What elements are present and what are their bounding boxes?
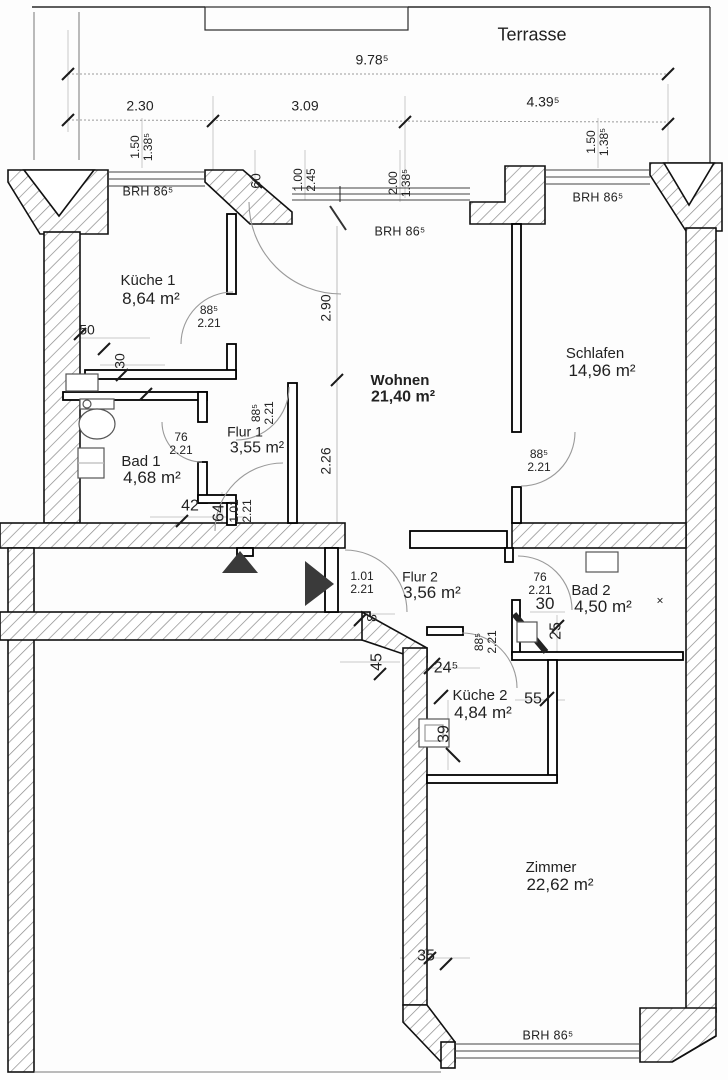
door-kueche2-dim: 88⁵ 2.21 — [473, 630, 499, 653]
door-kueche1-dim: 88⁵ 2.21 — [197, 304, 220, 330]
dim-seg-mid: 3.09 — [291, 98, 318, 113]
dim-wall-45: 45 — [368, 653, 385, 671]
floor-plan-drawing — [0, 0, 728, 1080]
dim-depth-226: 2.26 — [318, 447, 333, 474]
entrance-arrows — [222, 551, 334, 606]
dim-bad2-30: 30 — [536, 595, 555, 613]
brh-label-bottom: BRH 86⁵ — [522, 1029, 573, 1043]
dim-wall-8: 8 — [364, 614, 379, 622]
room-wohnen-area: 21,40 m² — [371, 388, 435, 405]
door-flur1-dim: 88⁵ 2.21 — [250, 401, 276, 424]
room-flur1-area: 3,55 m² — [230, 439, 284, 456]
dim-step-64: 64 — [210, 504, 227, 522]
room-kueche1-area: 8,64 m² — [122, 290, 180, 308]
terrace-label: Terrasse — [497, 25, 566, 44]
extension-lines — [55, 30, 668, 958]
dim-window-left: 1.50 1.38⁵ — [129, 133, 155, 161]
dim-seg-right: 4.39⁵ — [526, 94, 559, 109]
dim-bad2-25: 25 — [547, 622, 564, 640]
brh-label-middle: BRH 86⁵ — [374, 225, 425, 239]
dim-balcony-door: 1.00 2.45 — [292, 168, 318, 191]
room-wohnen-label: Wohnen — [371, 373, 430, 389]
room-kueche2-label: Küche 2 — [452, 688, 507, 704]
wall-niche — [66, 374, 98, 391]
brh-label-right: BRH 86⁵ — [572, 191, 623, 205]
x-marker: × — [656, 595, 663, 608]
room-kueche1-label: Küche 1 — [120, 273, 175, 289]
bad2-sink — [586, 552, 618, 572]
dim-wall-35: 35 — [417, 947, 435, 964]
dim-wall-50: 50 — [79, 322, 95, 337]
dim-total-width: 9.78⁵ — [355, 52, 388, 67]
door-schlafen-dim: 88⁵ 2.21 — [527, 448, 550, 474]
door-bad1-dim: 76 2.21 — [169, 431, 192, 457]
dim-shaft-30: 30 — [112, 353, 127, 369]
toilet-flush — [83, 400, 91, 408]
bad2-shower-tray — [517, 622, 537, 642]
brh-label-left: BRH 86⁵ — [122, 185, 173, 199]
dim-depth-290: 2.90 — [318, 294, 333, 321]
dim-pillar-60: 60 — [248, 173, 263, 189]
dim-window-right: 1.50 1.38⁵ — [585, 128, 611, 156]
room-kueche2-area: 4,84 m² — [454, 704, 512, 722]
room-flur2-area: 3,56 m² — [403, 584, 461, 602]
room-bad2-area: 4,50 m² — [574, 598, 632, 616]
room-schlafen-area: 14,96 m² — [568, 362, 635, 380]
room-zimmer-label: Zimmer — [526, 860, 577, 876]
room-flur1-label: Flur 1 — [227, 424, 263, 439]
outer-walls — [0, 163, 722, 1072]
dim-seg-left: 2.30 — [126, 98, 153, 113]
room-zimmer-area: 22,62 m² — [526, 876, 593, 894]
room-schlafen-label: Schlafen — [566, 346, 624, 362]
floor-plan-page: Terrasse 9.78⁵ 2.30 3.09 4.39⁵ 1.50 1.38… — [0, 0, 728, 1080]
entry-flur2-dim: 1.01 2.21 — [350, 570, 373, 596]
dim-wall-39: 39 — [435, 725, 452, 743]
dim-wohnen-window: 2.00 1.38⁵ — [387, 169, 413, 197]
room-bad1-area: 4,68 m² — [123, 469, 181, 487]
dim-step-42: 42 — [181, 497, 199, 514]
dim-wall-55: 55 — [524, 690, 542, 707]
toilet-bowl — [79, 409, 115, 439]
dim-wall-245: 24⁵ — [434, 659, 458, 676]
entry-flur1-dim: 1.01 2.21 — [228, 499, 254, 522]
